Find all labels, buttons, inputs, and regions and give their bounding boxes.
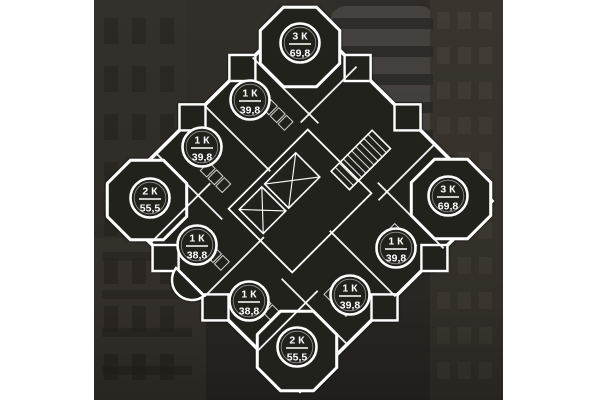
apartment-area-label: 38,8 (239, 306, 260, 318)
apartment-rooms-label: 3 К (440, 184, 456, 196)
balcony-step (395, 104, 421, 130)
apartment-area-label: 69,8 (290, 48, 311, 60)
apartment-rooms-label: 1 К (194, 135, 210, 147)
apartment-badge[interactable]: 3 К69,8 (281, 24, 320, 63)
apartment-area-label: 38,8 (187, 250, 208, 262)
floorplan-page: 3 К69,81 К39,81 К39,82 К55,51 К38,81 К38… (0, 0, 600, 400)
balcony-step (229, 55, 255, 81)
apartment-area-label: 39,8 (240, 105, 261, 117)
apartment-badge[interactable]: 2 К55,5 (278, 328, 317, 367)
apartment-rooms-label: 1 К (189, 233, 205, 245)
apartment-area-label: 55,5 (140, 203, 161, 215)
apartment-rooms-label: 1 К (242, 88, 258, 100)
apartment-badge[interactable]: 1 К38,8 (178, 226, 217, 265)
apartment-rooms-label: 3 К (292, 31, 308, 43)
apartment-area-label: 39,8 (386, 253, 407, 265)
apartment-rooms-label: 2 К (142, 186, 158, 198)
apartment-badge[interactable]: 1 К39,8 (231, 81, 270, 120)
apartment-badge[interactable]: 3 К69,8 (429, 177, 468, 216)
apartment-badge[interactable]: 1 К39,8 (377, 229, 416, 268)
apartment-rooms-label: 1 К (388, 236, 404, 248)
apartment-rooms-label: 2 К (289, 335, 305, 347)
floor-plan-scene: 3 К69,81 К39,81 К39,82 К55,51 К38,81 К38… (0, 0, 600, 400)
apartment-rooms-label: 1 К (342, 283, 358, 295)
apartment-badge[interactable]: 1 К39,8 (183, 128, 222, 167)
apartment-badge[interactable]: 1 К38,8 (230, 282, 269, 321)
balcony-step (203, 294, 229, 320)
apartment-badge[interactable]: 2 К55,5 (131, 179, 170, 218)
apartment-area-label: 55,5 (287, 352, 308, 364)
balcony-step (345, 55, 371, 81)
balcony-step (372, 294, 398, 320)
apartment-area-label: 39,8 (340, 300, 361, 312)
apartment-area-label: 39,8 (192, 152, 213, 164)
apartment-rooms-label: 1 К (241, 289, 257, 301)
apartment-area-label: 69,8 (438, 201, 459, 213)
apartment-badge[interactable]: 1 К39,8 (331, 276, 370, 315)
balcony-step (153, 245, 179, 271)
balcony-step (421, 245, 447, 271)
